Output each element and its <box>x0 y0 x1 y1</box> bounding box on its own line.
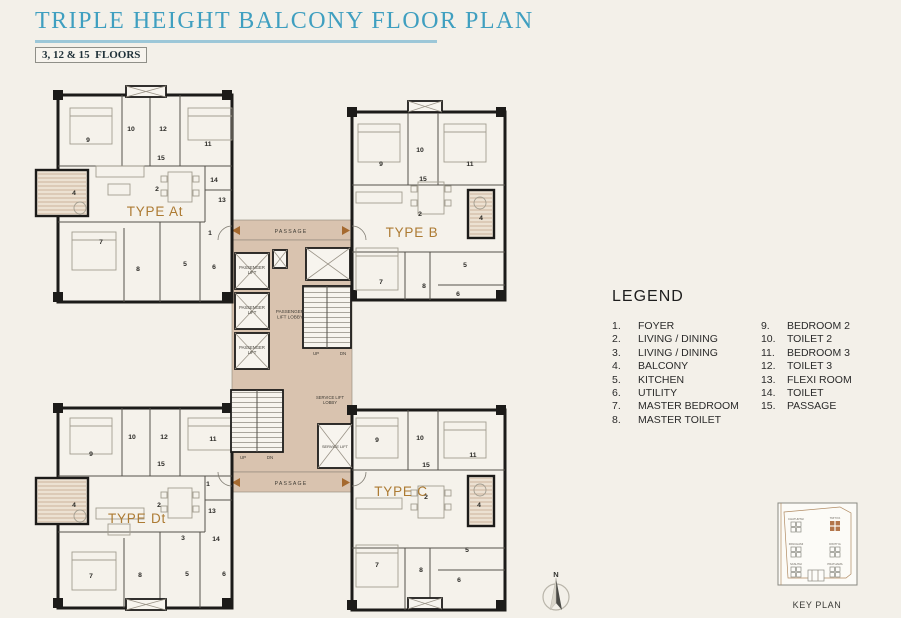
legend-item-label: LIVING / DINING <box>638 333 718 346</box>
core-label-up: UP <box>313 351 319 356</box>
legend-item-label: TOILET 2 <box>787 333 832 346</box>
tower-footprint <box>830 547 834 551</box>
tower-footprint <box>797 528 801 532</box>
room-number-15: 15 <box>422 462 430 469</box>
room-number-5: 5 <box>183 261 187 268</box>
tower-footprint <box>836 567 840 571</box>
room-number-2: 2 <box>424 494 428 501</box>
core-label-passage: PASSAGE <box>275 229 308 235</box>
tower-footprint <box>830 521 834 525</box>
legend-item-number: 4. <box>612 360 638 373</box>
legend-item: 5.KITCHEN <box>612 374 739 387</box>
room-number-15: 15 <box>419 176 427 183</box>
legend-item-label: MASTER TOILET <box>638 414 721 427</box>
room-number-11: 11 <box>209 436 216 443</box>
tower-label-tritiya: TRITIYA <box>830 516 841 520</box>
room-number-6: 6 <box>212 264 216 271</box>
tower-footprint <box>836 573 840 577</box>
legend-item-number: 6. <box>612 387 638 400</box>
room-number-8: 8 <box>138 572 142 579</box>
tower-label-sashthi: SASHTHI <box>790 562 802 566</box>
unit-label-type-c: TYPE C <box>374 484 428 499</box>
unit-type-at <box>36 90 232 302</box>
legend-item-label: TOILET <box>787 387 824 400</box>
core-label-passenger: PASSENGERLIFT LOBBY <box>276 309 305 319</box>
tower-footprint <box>830 527 834 531</box>
room-number-10: 10 <box>416 147 424 154</box>
legend-item-label: KITCHEN <box>638 374 684 387</box>
room-number-3: 3 <box>181 535 185 542</box>
legend-item-number: 2. <box>612 333 638 346</box>
tower-label-chaturthi: CHATURTHI <box>788 517 804 521</box>
balcony <box>468 476 494 526</box>
room-number-9: 9 <box>379 161 383 168</box>
legend-item-number: 15. <box>761 400 787 413</box>
tower-footprint <box>791 522 795 526</box>
tower-footprint <box>797 567 801 571</box>
legend-title: LEGEND <box>612 288 852 306</box>
room-number-10: 10 <box>416 435 424 442</box>
room-number-9: 9 <box>375 437 379 444</box>
unit-type-c <box>347 405 506 610</box>
room-number-1: 1 <box>208 230 212 237</box>
legend-item: 4.BALCONY <box>612 360 739 373</box>
balcony <box>36 170 88 216</box>
legend-item: 14.TOILET <box>761 387 852 400</box>
room-number-7: 7 <box>99 239 103 246</box>
room-number-8: 8 <box>419 567 423 574</box>
room-number-2: 2 <box>418 211 422 218</box>
room-number-8: 8 <box>422 283 426 290</box>
core-label-service-lift: SERVICE LIFT <box>322 444 349 449</box>
balcony <box>36 478 88 524</box>
legend-item-label: FOYER <box>638 320 674 333</box>
compass-needle-icon <box>556 578 562 610</box>
core-label-up: UP <box>240 455 246 460</box>
legend-item-label: UTILITY <box>638 387 677 400</box>
legend-item-number: 11. <box>761 347 787 360</box>
room-number-14: 14 <box>210 177 218 184</box>
tower-footprint <box>830 573 834 577</box>
legend-item: 11.BEDROOM 3 <box>761 347 852 360</box>
legend-item-number: 10. <box>761 333 787 346</box>
tower-footprint <box>791 528 795 532</box>
unit-label-type-b: TYPE B <box>386 225 439 240</box>
room-number-11: 11 <box>466 161 473 168</box>
tower-footprint <box>797 553 801 557</box>
legend-item-label: FLEXI ROOM <box>787 374 852 387</box>
tower-footprint <box>830 553 834 557</box>
legend-item-number: 1. <box>612 320 638 333</box>
legend-item: 1.FOYER <box>612 320 739 333</box>
legend-item: 7.MASTER BEDROOM <box>612 400 739 413</box>
tower-label-panchami: PANCHAMI <box>789 542 804 546</box>
room-number-15: 15 <box>157 155 165 162</box>
tower-footprint <box>830 567 834 571</box>
legend-item: 9.BEDROOM 2 <box>761 320 852 333</box>
tower-label-prathama: PRATHAMA <box>827 562 842 566</box>
tower-footprint <box>836 527 840 531</box>
legend-item: 6.UTILITY <box>612 387 739 400</box>
room-number-2: 2 <box>157 502 161 509</box>
room-number-1: 1 <box>206 481 210 488</box>
room-number-6: 6 <box>222 571 226 578</box>
room-number-13: 13 <box>218 197 226 204</box>
tower-footprint <box>791 573 795 577</box>
legend: LEGEND 1.FOYER2.LIVING / DINING3.LIVING … <box>612 288 852 427</box>
staircase-upper <box>303 286 351 348</box>
core-label-passage: PASSAGE <box>275 481 308 487</box>
legend-item-label: TOILET 3 <box>787 360 832 373</box>
legend-item: 13.FLEXI ROOM <box>761 374 852 387</box>
legend-item-number: 9. <box>761 320 787 333</box>
brochure-page: TRIPLE HEIGHT BALCONY FLOOR PLAN 3, 12 &… <box>0 0 901 618</box>
staircase-lower <box>231 390 283 452</box>
tower-footprint <box>797 573 801 577</box>
tower-footprint <box>797 522 801 526</box>
north-label: N <box>553 570 558 579</box>
tower-footprint <box>791 553 795 557</box>
legend-item-number: 14. <box>761 387 787 400</box>
room-number-13: 13 <box>208 508 216 515</box>
legend-item: 3.LIVING / DINING <box>612 347 739 360</box>
legend-item: 2.LIVING / DINING <box>612 333 739 346</box>
core-label-dn: DN <box>267 455 273 460</box>
legend-item: 12.TOILET 3 <box>761 360 852 373</box>
room-number-9: 9 <box>86 137 90 144</box>
room-number-11: 11 <box>204 141 211 148</box>
legend-item-label: BALCONY <box>638 360 688 373</box>
legend-item-label: MASTER BEDROOM <box>638 400 739 413</box>
legend-item-label: LIVING / DINING <box>638 347 718 360</box>
legend-item-number: 5. <box>612 374 638 387</box>
room-number-12: 12 <box>159 126 167 133</box>
room-number-6: 6 <box>456 291 460 298</box>
tower-footprint <box>791 547 795 551</box>
tower-footprint <box>836 521 840 525</box>
room-number-5: 5 <box>463 262 467 269</box>
unit-label-type-dt: TYPE Dt <box>108 511 166 526</box>
room-number-10: 10 <box>128 434 136 441</box>
room-number-5: 5 <box>185 571 189 578</box>
room-number-5: 5 <box>465 547 469 554</box>
room-number-4: 4 <box>477 502 481 509</box>
legend-item-label: BEDROOM 2 <box>787 320 850 333</box>
legend-item-label: BEDROOM 3 <box>787 347 850 360</box>
legend-item-number: 3. <box>612 347 638 360</box>
room-number-10: 10 <box>127 126 135 133</box>
legend-item-label: PASSAGE <box>787 400 836 413</box>
legend-item: 15.PASSAGE <box>761 400 852 413</box>
room-number-9: 9 <box>89 451 93 458</box>
room-number-7: 7 <box>375 562 379 569</box>
legend-column-2: 9.BEDROOM 210.TOILET 211.BEDROOM 312.TOI… <box>761 320 852 427</box>
balcony <box>468 190 494 238</box>
tower-footprint <box>836 553 840 557</box>
tower-label-dwitiya: DWITIYA <box>829 542 841 546</box>
north-compass <box>543 578 569 610</box>
room-number-14: 14 <box>212 536 220 543</box>
room-number-7: 7 <box>379 279 383 286</box>
legend-item-number: 7. <box>612 400 638 413</box>
room-number-8: 8 <box>136 266 140 273</box>
tower-footprint <box>791 567 795 571</box>
room-number-15: 15 <box>157 461 165 468</box>
room-number-12: 12 <box>160 434 168 441</box>
room-number-7: 7 <box>89 573 93 580</box>
tower-footprint <box>836 547 840 551</box>
legend-item: 10.TOILET 2 <box>761 333 852 346</box>
room-number-6: 6 <box>457 577 461 584</box>
room-number-4: 4 <box>479 215 483 222</box>
legend-item: 8.MASTER TOILET <box>612 414 739 427</box>
tower-footprint <box>797 547 801 551</box>
key-plan-caption: KEY PLAN <box>793 600 842 610</box>
room-number-4: 4 <box>72 190 76 197</box>
room-number-2: 2 <box>155 186 159 193</box>
legend-item-number: 12. <box>761 360 787 373</box>
legend-item-number: 13. <box>761 374 787 387</box>
room-number-4: 4 <box>72 502 76 509</box>
legend-item-number: 8. <box>612 414 638 427</box>
room-number-11: 11 <box>469 452 476 459</box>
legend-column-1: 1.FOYER2.LIVING / DINING3.LIVING / DININ… <box>612 320 739 427</box>
unit-label-type-at: TYPE At <box>127 204 184 219</box>
core-label-dn: DN <box>340 351 346 356</box>
unit-type-b <box>347 107 506 300</box>
